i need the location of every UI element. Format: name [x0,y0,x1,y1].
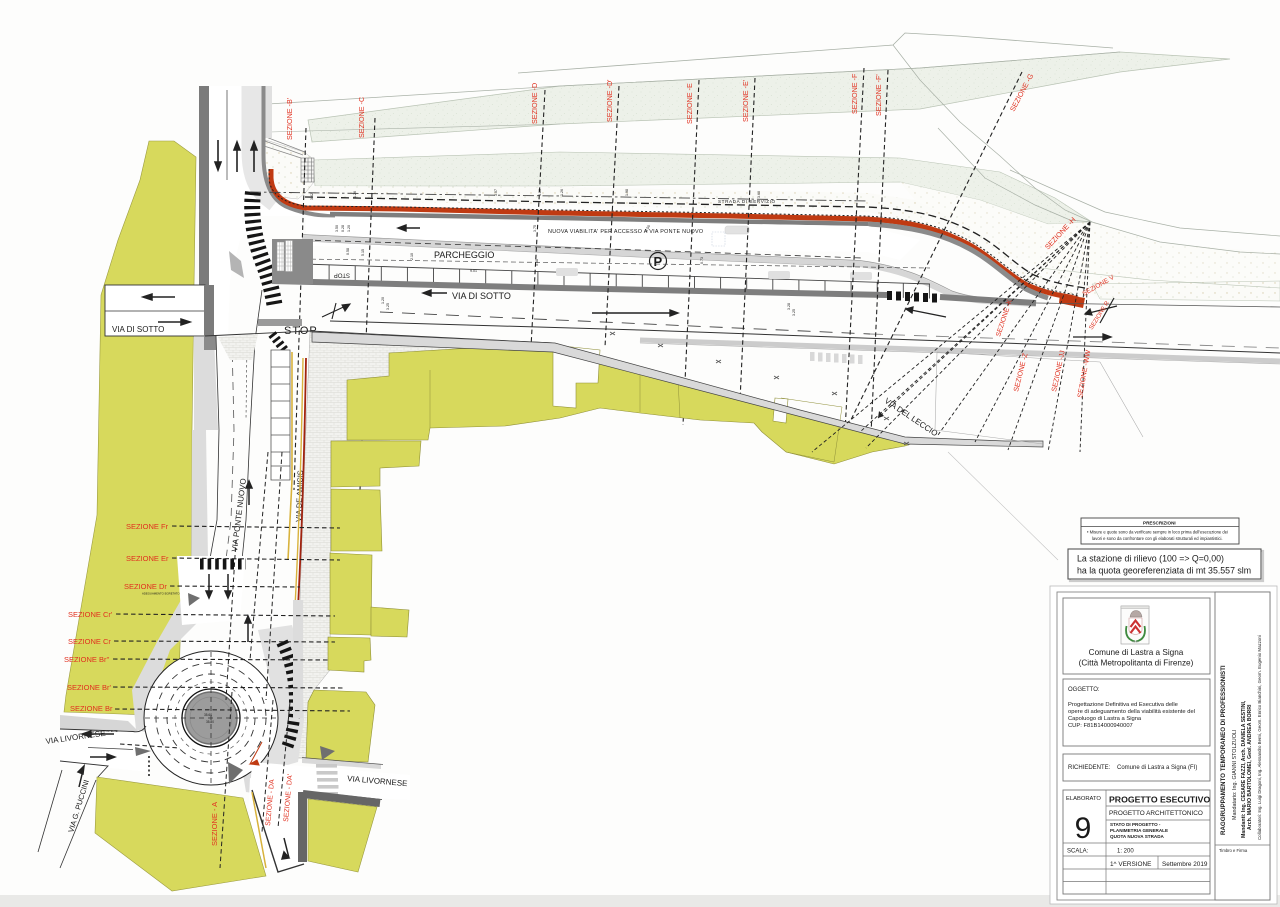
svg-text:• Misure e quote sono da verif: • Misure e quote sono da verificare semp… [1087,530,1228,535]
svg-text:QUOTA NUOVA STRADA: QUOTA NUOVA STRADA [1110,834,1165,839]
svg-text:SEZIONE -D: SEZIONE -D [530,83,539,124]
svg-text:SEZIONE -F': SEZIONE -F' [874,74,883,116]
svg-text:SEZIONE -D': SEZIONE -D' [605,79,614,122]
svg-text:ELABORATO: ELABORATO [1066,796,1101,802]
svg-text:SEZIONE Br'': SEZIONE Br'' [64,655,110,664]
svg-text:3.28: 3.28 [787,303,791,310]
svg-text:ha la quota georeferenziata di: ha la quota georeferenziata di mt 35.557… [1077,566,1251,576]
svg-text:VIA DI SOTTO: VIA DI SOTTO [112,325,164,334]
svg-text:0.58: 0.58 [346,248,350,255]
svg-text:PROGETTO ARCHITETTONICO: PROGETTO ARCHITETTONICO [1109,810,1203,817]
svg-text:Progettazione Definitiva: Progettazione Definitiva ed Esecutiva de… [1068,702,1178,708]
svg-text:2.10: 2.10 [410,253,414,260]
svg-text:3.25: 3.25 [792,309,796,316]
svg-text:3.42: 3.42 [310,193,314,200]
svg-text:SEZIONE - A: SEZIONE - A [210,802,219,846]
svg-text:SEZIONE Dr: SEZIONE Dr [124,582,167,591]
svg-text:SEZIONE Cr: SEZIONE Cr [68,637,111,646]
svg-text:ADEGUAMENTO EGRETATO: ADEGUAMENTO EGRETATO [142,592,180,596]
svg-text:LIVELLO ESISTENTE: LIVELLO ESISTENTE [92,729,118,733]
svg-text:Settembre 2019: Settembre 2019 [1162,861,1208,868]
svg-text:0.28: 0.28 [341,225,345,232]
svg-text:OGGETTO:: OGGETTO: [1068,687,1100,693]
svg-text:3.25: 3.25 [386,303,390,310]
svg-text:1^ VERSIONE: 1^ VERSIONE [1110,861,1151,868]
svg-text:5.15: 5.15 [361,249,365,256]
svg-text:SEZIONE -C: SEZIONE -C [357,97,366,138]
svg-text:SEZIONE Br: SEZIONE Br [70,704,113,713]
svg-text:SEZIONE Fr: SEZIONE Fr [126,522,169,531]
svg-text:NUOVA VIABILITA' PER ACCESSO A: NUOVA VIABILITA' PER ACCESSO A VIA PONTE… [548,229,703,235]
svg-text:0.73: 0.73 [700,257,704,264]
svg-text:PARCHEGGIO: PARCHEGGIO [434,250,494,260]
svg-text:9.01: 9.01 [470,269,477,273]
svg-text:3.75: 3.75 [533,225,537,232]
svg-text:STATO DI PROGETTO -: STATO DI PROGETTO - [1110,822,1161,827]
svg-text:1: 200: 1: 200 [1117,849,1134,855]
svg-text:P: P [654,254,663,269]
svg-text:SEZIONE Er: SEZIONE Er [126,554,169,563]
svg-text:RAGGRUPPAMENTO TEMPORANEO DI P: RAGGRUPPAMENTO TEMPORANEO DI PROFESSIONI… [1220,665,1227,835]
svg-text:1.26: 1.26 [560,189,564,196]
svg-text:SEZIONE -F: SEZIONE -F [850,73,859,114]
svg-text:Collaboratori: Ing. Luigi Drag: Collaboratori: Ing. Luigi Dragoni, Ing. … [1257,635,1262,840]
svg-text:Capoluogo di Lastra a Signa: Capoluogo di Lastra a Signa [1068,716,1142,722]
svg-text:VIA DI SOTTO: VIA DI SOTTO [452,291,511,301]
svg-text:SEZIONE Cr': SEZIONE Cr' [68,610,113,619]
svg-text:PROGETTO ESECUTIVO: PROGETTO ESECUTIVO [1109,795,1210,805]
svg-text:(Città Metropolitanta di Firen: (Città Metropolitanta di Firenze) [1079,659,1194,668]
svg-text:Timbro e Firma: Timbro e Firma [1219,848,1248,853]
svg-text:SEZIONE -E: SEZIONE -E [685,83,694,124]
svg-text:1.20: 1.20 [347,225,351,232]
svg-text:1.26: 1.26 [353,191,357,198]
svg-text:CUP: F81B14000940007: CUP: F81B14000940007 [1068,723,1133,729]
svg-text:STOP: STOP [334,272,350,278]
svg-text:1.20: 1.20 [381,297,385,304]
svg-text:Arch. MARIO BARTOLOMEI, Geol.: Arch. MARIO BARTOLOMEI, Geol. ANDREA BOR… [1247,704,1253,830]
svg-text:Mandatario: Ing. GIANNI STOLZU: Mandatario: Ing. GIANNI STOLZUOLI [1232,730,1238,820]
svg-text:lavori e sono da confrontare c: lavori e sono da confrontare con gli ela… [1092,536,1223,541]
svg-text:3.07: 3.07 [494,189,498,196]
svg-text:SEZIONE -B': SEZIONE -B' [285,97,294,140]
svg-text:9: 9 [1075,812,1092,845]
svg-text:Comune di Lastra a Signa (FI): Comune di Lastra a Signa (FI) [1117,765,1197,771]
svg-text:SEZIONE Br': SEZIONE Br' [67,683,112,692]
svg-text:PLANIMETRIA GENERALE: PLANIMETRIA GENERALE [1110,828,1168,833]
svg-text:35.80: 35.80 [206,720,214,724]
svg-text:SEZIONE -E': SEZIONE -E' [741,79,750,122]
svg-text:PRESCRIZIONI: PRESCRIZIONI [1143,521,1176,526]
svg-text:3.50: 3.50 [335,225,339,232]
svg-text:1.98: 1.98 [625,189,629,196]
svg-text:3.60: 3.60 [757,191,761,198]
svg-text:STRADA DI SERVIZIO: STRADA DI SERVIZIO [718,199,776,204]
svg-text:5.38: 5.38 [535,259,539,266]
svg-text:Comune di Lastra a Signa: Comune di Lastra a Signa [1089,648,1184,657]
svg-text:La stazione di rilievo (100 =>: La stazione di rilievo (100 => Q=0,00) [1077,554,1224,564]
svg-text:opere di adeguamento della via: opere di adeguamento della viabilità esi… [1068,709,1195,715]
svg-text:RICHIEDENTE:: RICHIEDENTE: [1068,765,1111,771]
svg-text:SCALA:: SCALA: [1067,849,1089,855]
svg-text:1.80: 1.80 [538,189,542,196]
